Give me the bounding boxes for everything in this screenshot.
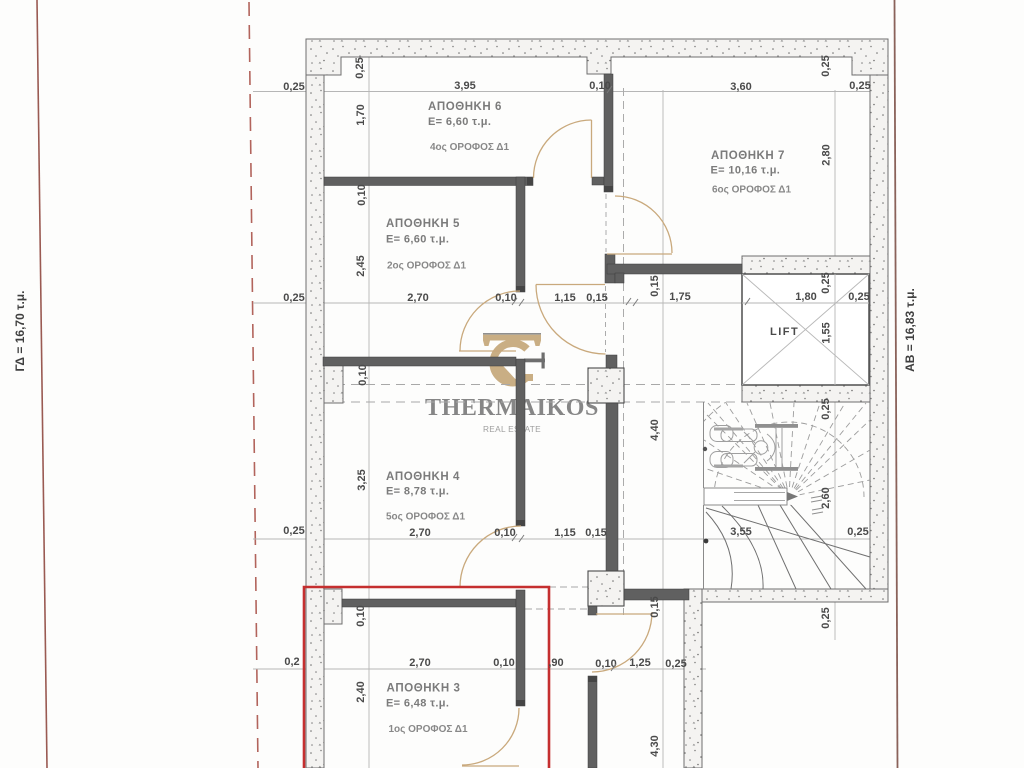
svg-text:0,15: 0,15 (586, 292, 607, 304)
svg-text:Ε= 6,60 τ.μ.: Ε= 6,60 τ.μ. (428, 116, 491, 128)
svg-text:0,25: 0,25 (283, 292, 304, 304)
svg-text:,90: ,90 (548, 657, 563, 669)
svg-text:3,60: 3,60 (730, 81, 751, 93)
svg-text:4,30: 4,30 (649, 735, 661, 756)
svg-text:0,25: 0,25 (847, 526, 868, 538)
svg-text:1,70: 1,70 (355, 104, 367, 125)
svg-text:0,25: 0,25 (283, 525, 304, 537)
svg-text:2,70: 2,70 (407, 292, 428, 304)
svg-text:Ε= 8,78 τ.μ.: Ε= 8,78 τ.μ. (386, 486, 449, 498)
svg-text:2ος ΟΡΟΦΟΣ Δ1: 2ος ΟΡΟΦΟΣ Δ1 (387, 261, 466, 272)
svg-text:THERMAIKOS: THERMAIKOS (425, 395, 599, 421)
svg-text:6ος ΟΡΟΦΟΣ Δ1: 6ος ΟΡΟΦΟΣ Δ1 (712, 185, 791, 196)
svg-text:ΓΔ = 16,70 τ.μ.: ΓΔ = 16,70 τ.μ. (13, 291, 27, 372)
svg-text:0,15: 0,15 (649, 275, 661, 296)
svg-text:3,95: 3,95 (454, 80, 475, 92)
svg-text:0,10: 0,10 (356, 184, 368, 205)
svg-text:0,25: 0,25 (354, 57, 366, 78)
svg-text:Ε= 6,48 τ.μ.: Ε= 6,48 τ.μ. (386, 698, 449, 710)
svg-text:0,15: 0,15 (649, 596, 661, 617)
svg-text:0,10: 0,10 (589, 80, 610, 92)
svg-text:ΑΠΟΘΗΚΗ 3: ΑΠΟΘΗΚΗ 3 (387, 683, 461, 695)
svg-text:0,25: 0,25 (820, 398, 832, 419)
svg-text:0,25: 0,25 (820, 272, 832, 293)
svg-text:2,45: 2,45 (355, 255, 367, 276)
svg-text:2,60: 2,60 (820, 487, 832, 508)
svg-text:2,70: 2,70 (409, 657, 430, 669)
svg-text:2,70: 2,70 (409, 527, 430, 539)
svg-text:1,15: 1,15 (554, 292, 575, 304)
svg-text:Ε= 10,16 τ.μ.: Ε= 10,16 τ.μ. (711, 165, 781, 177)
svg-text:3,25: 3,25 (356, 469, 368, 490)
svg-text:LIFT: LIFT (770, 326, 799, 338)
svg-text:0,25: 0,25 (849, 80, 870, 92)
svg-text:0,25: 0,25 (820, 55, 832, 76)
svg-text:0,25: 0,25 (848, 291, 869, 303)
svg-text:0,25: 0,25 (820, 607, 832, 628)
svg-text:2,40: 2,40 (355, 681, 367, 702)
svg-text:ΑΠΟΘΗΚΗ 4: ΑΠΟΘΗΚΗ 4 (386, 471, 460, 483)
svg-text:0,10: 0,10 (355, 605, 367, 626)
svg-text:4ος ΟΡΟΦΟΣ Δ1: 4ος ΟΡΟΦΟΣ Δ1 (430, 142, 509, 153)
svg-text:0,2: 0,2 (284, 656, 299, 668)
svg-text:Ε= 6,60 τ.μ.: Ε= 6,60 τ.μ. (386, 234, 449, 246)
svg-text:1,15: 1,15 (554, 527, 575, 539)
svg-text:1,75: 1,75 (669, 291, 690, 303)
svg-text:1,55: 1,55 (821, 322, 833, 343)
svg-text:ΑΠΟΘΗΚΗ 5: ΑΠΟΘΗΚΗ 5 (386, 218, 460, 230)
svg-text:0,10: 0,10 (494, 527, 515, 539)
svg-text:0,25: 0,25 (283, 81, 304, 93)
svg-text:0,10: 0,10 (493, 657, 514, 669)
svg-text:ΑΒ = 16,83 τ.μ.: ΑΒ = 16,83 τ.μ. (903, 288, 917, 372)
svg-text:5ος ΟΡΟΦΟΣ Δ1: 5ος ΟΡΟΦΟΣ Δ1 (386, 512, 465, 523)
svg-text:1ος ΟΡΟΦΟΣ Δ1: 1ος ΟΡΟΦΟΣ Δ1 (389, 724, 468, 735)
svg-text:1,25: 1,25 (629, 657, 650, 669)
svg-text:2,80: 2,80 (821, 144, 833, 165)
svg-text:ΑΠΟΘΗΚΗ 7: ΑΠΟΘΗΚΗ 7 (711, 150, 785, 162)
svg-text:1,80: 1,80 (795, 291, 816, 303)
svg-text:0,25: 0,25 (665, 658, 686, 670)
svg-text:4,40: 4,40 (649, 419, 661, 440)
svg-text:0,15: 0,15 (585, 527, 606, 539)
svg-text:0,10: 0,10 (357, 364, 369, 385)
svg-text:3,55: 3,55 (730, 526, 751, 538)
svg-text:REAL ESTATE: REAL ESTATE (483, 424, 541, 434)
svg-text:ΑΠΟΘΗΚΗ 6: ΑΠΟΘΗΚΗ 6 (428, 101, 502, 113)
